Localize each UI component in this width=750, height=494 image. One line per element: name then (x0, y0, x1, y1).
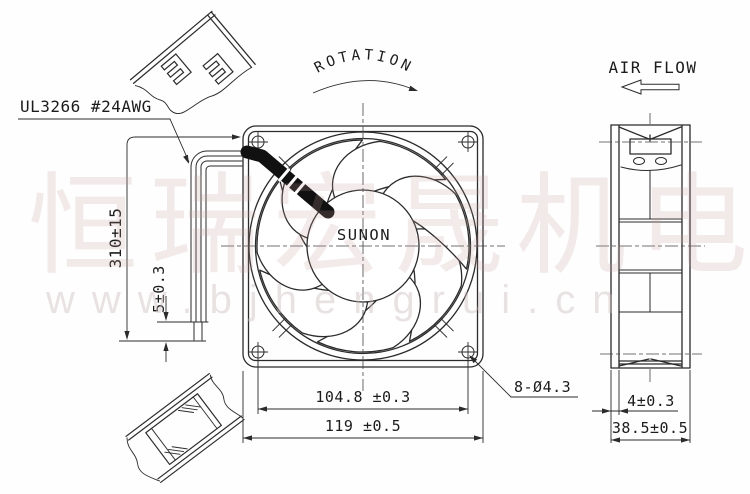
dim-frame-depth: 38.5±0.5 (611, 419, 690, 443)
airflow-arrow (622, 80, 679, 94)
connector-side-view (119, 374, 244, 488)
fan-side-view (596, 113, 705, 384)
drawing-canvas: ROTATION AIR FLOW (0, 0, 750, 494)
rotation-label-group: ROTATION (312, 47, 418, 93)
rotation-label: ROTATION (312, 47, 416, 76)
airflow-label-group: AIR FLOW (608, 58, 697, 94)
lead-wires (189, 151, 242, 340)
svg-text:310±15: 310±15 (106, 208, 125, 269)
stripped-wire-tip (194, 322, 202, 340)
terminal-slot (203, 54, 233, 84)
svg-text:4±0.3: 4±0.3 (627, 392, 675, 410)
wire-spec-group: UL3266 #24AWG (18, 97, 189, 164)
svg-text:104.8 ±0.3: 104.8 ±0.3 (315, 388, 410, 406)
svg-text:119 ±0.5: 119 ±0.5 (325, 417, 401, 435)
terminal-slot (161, 54, 191, 84)
svg-text:5±0.3: 5±0.3 (150, 265, 168, 313)
wire-spec-label: UL3266 #24AWG (20, 97, 152, 116)
break-line (120, 438, 160, 487)
dim-mounting-holes: 8-Ø4.3 (469, 355, 578, 397)
break-line (206, 375, 243, 421)
svg-text:8-Ø4.3: 8-Ø4.3 (514, 378, 571, 396)
brand-label: SUNON (337, 226, 391, 244)
break-line (135, 21, 251, 132)
side-hub (621, 139, 681, 219)
fan-technical-drawing: ROTATION AIR FLOW (0, 0, 750, 494)
svg-text:38.5±0.5: 38.5±0.5 (612, 419, 688, 437)
airflow-label: AIR FLOW (608, 58, 697, 77)
dim-strip-length: 5±0.3 (150, 265, 208, 362)
fan-front-view: SUNON (221, 103, 505, 391)
rotation-arrow (313, 81, 410, 93)
dim-lead-wire-length: 310±15 (106, 134, 241, 341)
